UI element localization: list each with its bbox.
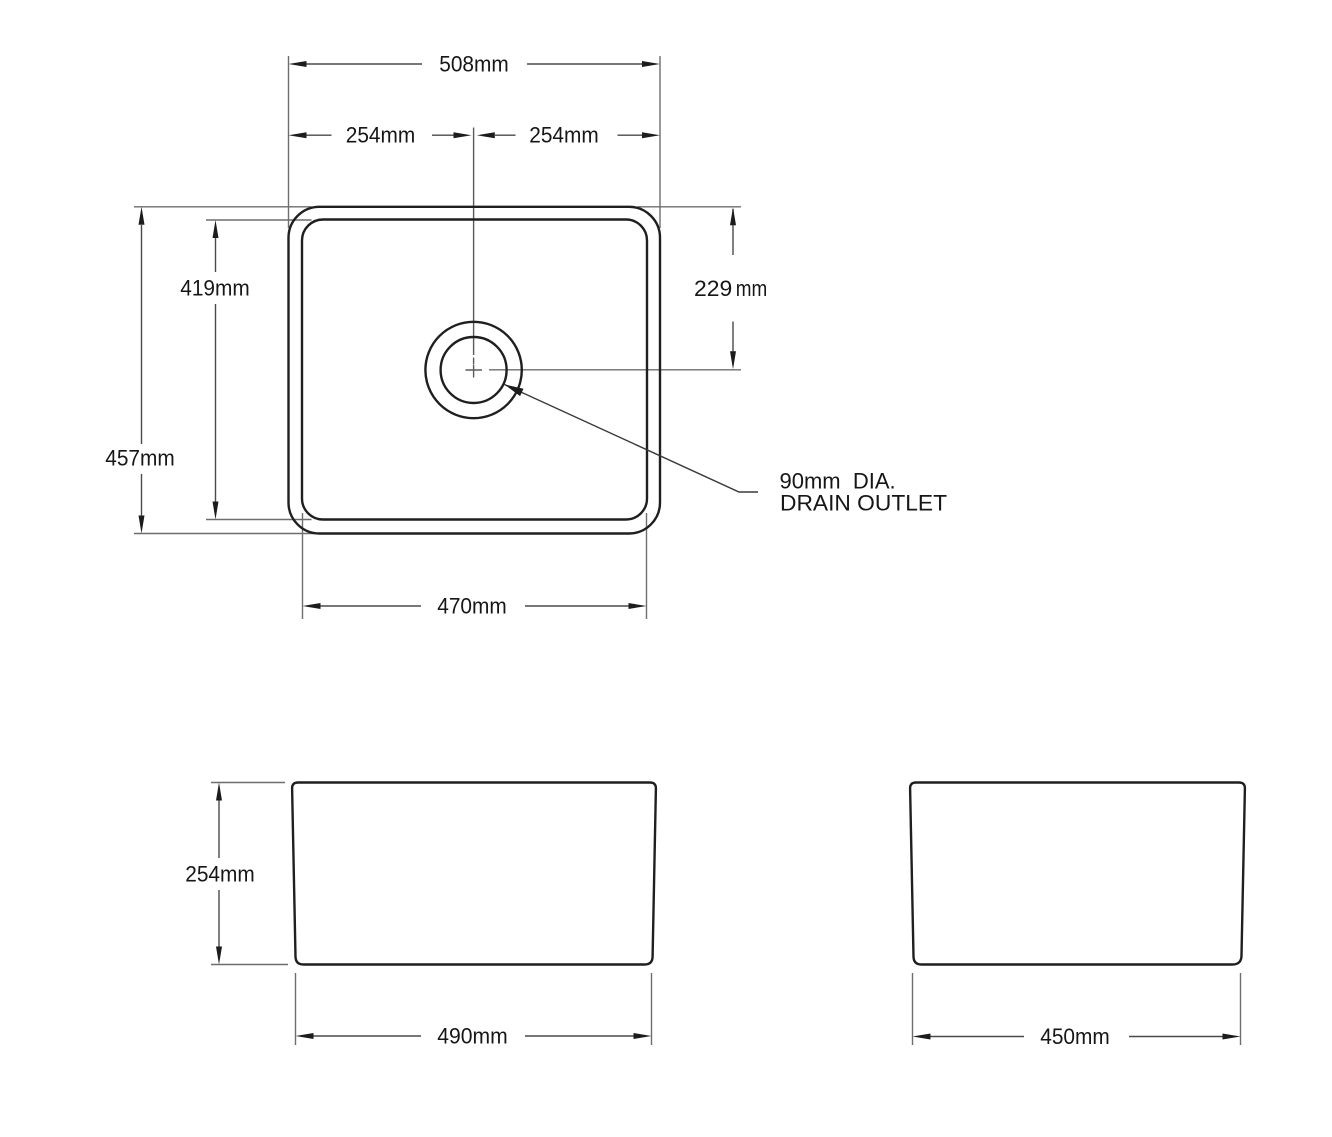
svg-text:254mm: 254mm: [529, 123, 599, 148]
svg-text:457mm: 457mm: [105, 446, 175, 471]
svg-text:490mm: 490mm: [437, 1024, 508, 1049]
svg-text:470mm: 470mm: [437, 594, 507, 619]
svg-text:508mm: 508mm: [439, 52, 509, 77]
svg-text:254mm: 254mm: [346, 123, 416, 148]
svg-text:419mm: 419mm: [180, 276, 250, 301]
svg-text:450mm: 450mm: [1040, 1024, 1110, 1049]
svg-text:DRAIN OUTLET: DRAIN OUTLET: [780, 491, 947, 516]
svg-text:mm: mm: [736, 276, 768, 301]
svg-text:254mm: 254mm: [185, 862, 255, 887]
svg-text:229: 229: [694, 276, 732, 301]
